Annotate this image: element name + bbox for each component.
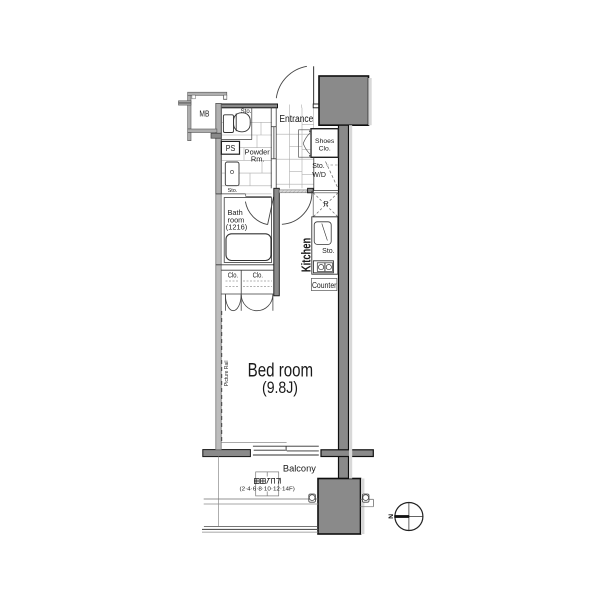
svg-text:Sto.: Sto.	[241, 109, 252, 115]
svg-text:(2·4·6·8·10·12·14F): (2·4·6·8·10·12·14F)	[240, 487, 295, 493]
svg-text:Rm.: Rm.	[251, 154, 265, 163]
svg-text:Sto.: Sto.	[322, 248, 335, 255]
svg-text:Sto.: Sto.	[312, 163, 325, 170]
svg-text:Clo.: Clo.	[253, 273, 263, 280]
svg-text:(9.8J): (9.8J)	[262, 378, 298, 397]
svg-text:MB: MB	[199, 108, 209, 118]
svg-text:Shoes: Shoes	[315, 138, 335, 145]
svg-text:PS: PS	[226, 144, 236, 153]
svg-text:W/D: W/D	[312, 172, 326, 179]
svg-text:Counter: Counter	[312, 280, 337, 290]
svg-text:(1216): (1216)	[226, 223, 247, 232]
svg-text:Clo.: Clo.	[228, 273, 238, 280]
svg-text:Sto.: Sto.	[228, 188, 238, 194]
svg-text:N: N	[388, 514, 395, 519]
svg-text:R: R	[323, 201, 328, 208]
svg-text:Balcony: Balcony	[283, 463, 316, 474]
svg-text:Clo.: Clo.	[319, 146, 331, 153]
svg-text:Entrance: Entrance	[279, 114, 313, 125]
svg-text:Picture Rail: Picture Rail	[224, 361, 230, 387]
svg-text:Kitchen: Kitchen	[300, 238, 314, 273]
